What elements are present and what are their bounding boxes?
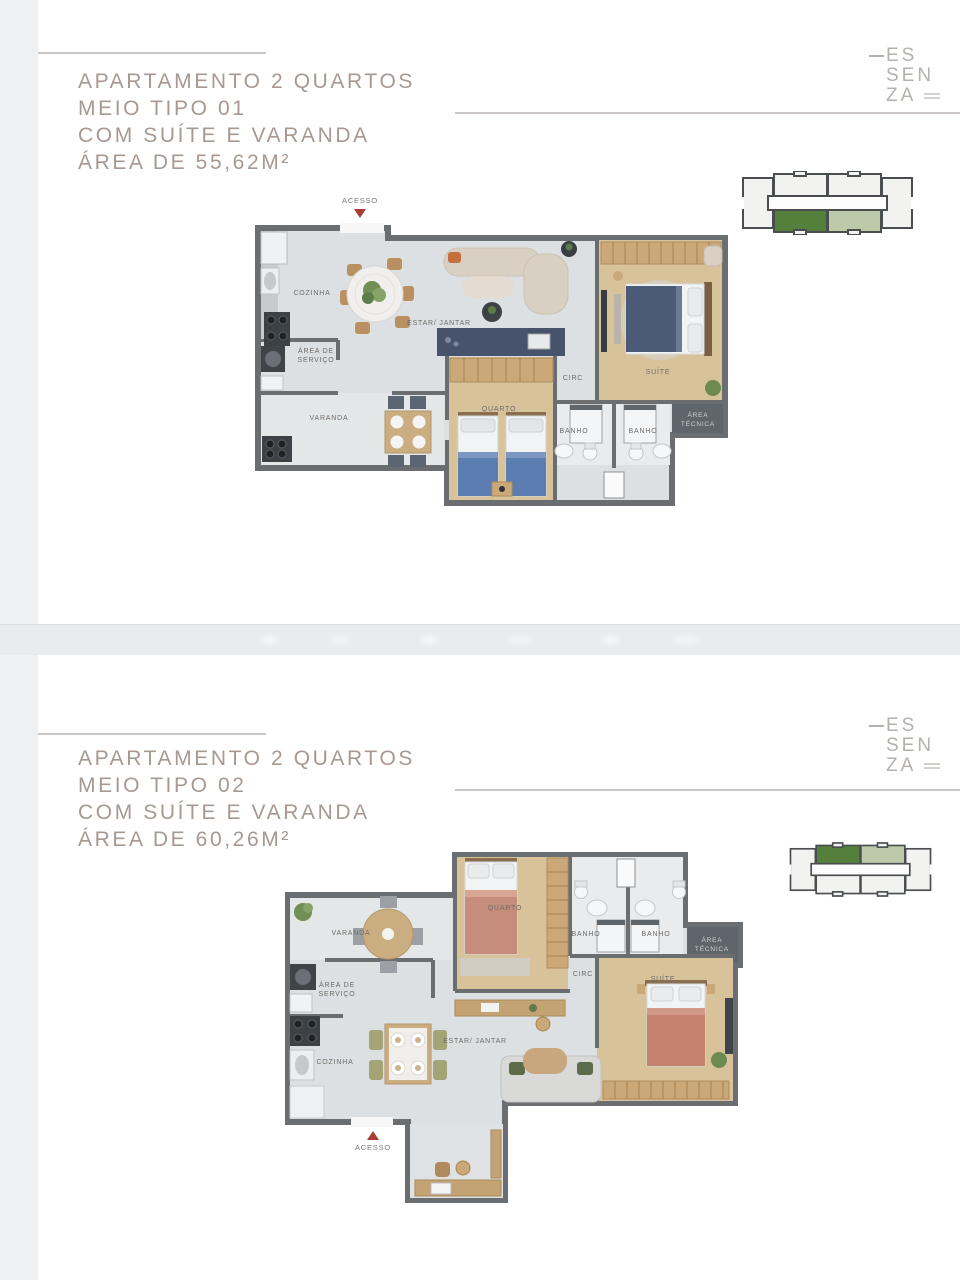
label-acesso: ACESSO: [355, 1143, 391, 1152]
divider-line: [38, 733, 266, 735]
plan2-title: APARTAMENTO 2 QUARTOS MEIO TIPO 02 COM S…: [78, 745, 415, 853]
building-key-plan-1: [740, 171, 915, 235]
logo-line: SEN: [886, 66, 956, 86]
tv: [528, 334, 550, 349]
varanda-table: [385, 411, 431, 453]
label-varanda: VARANDA: [332, 930, 371, 937]
tv-panel: [437, 328, 565, 356]
quarto-furniture: [460, 858, 568, 976]
grill: [262, 436, 292, 462]
label-varanda: VARANDA: [310, 415, 349, 422]
label-quarto: QUARTO: [488, 905, 523, 912]
label-area-servico: ÁREA DE: [298, 346, 334, 355]
title-line: ÁREA DE 55,62M²: [78, 149, 415, 176]
logo-dash: [869, 55, 884, 57]
entry-door-gap: [340, 223, 384, 233]
label-area-tecnica: ÁREA: [688, 410, 709, 419]
logo-line: ES: [886, 716, 956, 736]
label-area-tecnica: TÉCNICA: [695, 944, 729, 953]
plant: [705, 380, 721, 396]
accent-pillow: [448, 252, 461, 263]
suite-dresser: [725, 998, 733, 1054]
throw-blanket: [523, 1048, 567, 1074]
floor-plan-tipo-02: VARANDA ÁREA DE SERVIÇO COZINHA ESTAR/ J…: [285, 848, 760, 1205]
sideboard: [455, 1000, 565, 1016]
label-area-servico: ÁREA DE: [319, 980, 355, 989]
suite-closet: [603, 1081, 729, 1099]
title-line: COM SUÍTE E VARANDA: [78, 799, 415, 826]
essenza-logo: ES SEN ZA: [886, 716, 956, 776]
label-banho: BANHO: [572, 931, 601, 938]
brochure-page: APARTAMENTO 2 QUARTOS MEIO TIPO 01 COM S…: [0, 0, 960, 1280]
entry-arrow-icon: [354, 209, 366, 218]
label-area-servico: SERVIÇO: [319, 991, 356, 998]
essenza-logo: ES SEN ZA: [886, 46, 956, 106]
logo-line: ZA: [886, 756, 956, 776]
wardrobe: [547, 858, 568, 968]
label-circ: CIRC: [563, 375, 583, 382]
stove: [290, 1016, 320, 1046]
entry-door-gap: [351, 1117, 393, 1127]
label-cozinha: COZINHA: [316, 1059, 353, 1066]
label-area-servico: SERVIÇO: [298, 357, 335, 364]
logo-line: ES: [886, 46, 956, 66]
building-key-plan-2: [788, 838, 933, 901]
label-banho: BANHO: [642, 931, 671, 938]
title-line: MEIO TIPO 02: [78, 772, 415, 799]
plant: [711, 1052, 727, 1068]
label-banho: BANHO: [560, 428, 589, 435]
desk: [415, 1180, 501, 1196]
logo-line: SEN: [886, 736, 956, 756]
watermark-text-blur: [230, 631, 730, 649]
shaft: [604, 472, 624, 498]
label-quarto: QUARTO: [482, 406, 517, 413]
label-area-tecnica: TÉCNICA: [681, 419, 715, 428]
shelf: [491, 1130, 501, 1178]
label-estar-jantar: ESTAR/ JANTAR: [407, 320, 471, 327]
divider-line: [455, 112, 960, 114]
stool: [536, 1017, 550, 1031]
title-line: APARTAMENTO 2 QUARTOS: [78, 68, 415, 95]
logo-tagline-marks: [924, 93, 940, 101]
label-circ: CIRC: [573, 971, 593, 978]
laptop: [431, 1183, 451, 1194]
divider-line: [455, 789, 960, 791]
logo-line: ZA: [886, 86, 956, 106]
shaft: [617, 859, 635, 887]
logo-dash: [869, 725, 884, 727]
title-line: MEIO TIPO 01: [78, 95, 415, 122]
double-bed: [626, 282, 712, 356]
label-acesso: ACESSO: [342, 196, 378, 205]
desk-chair: [435, 1162, 450, 1177]
entry-arrow-icon: [367, 1131, 379, 1140]
label-cozinha: COZINHA: [293, 290, 330, 297]
laundry-fixtures: [290, 964, 316, 1012]
laundry-fixtures: [261, 346, 285, 390]
floor-plan-tipo-01: ACESSO COZINHA ESTAR/ JANTAR ÁREA DE SER…: [252, 190, 737, 520]
label-banho: BANHO: [629, 428, 658, 435]
divider-line: [38, 52, 266, 54]
title-line: APARTAMENTO 2 QUARTOS: [78, 745, 415, 772]
wardrobe: [450, 358, 553, 382]
label-suite: SUÍTE: [646, 367, 671, 376]
double-bed: [645, 980, 707, 1066]
logo-tagline-marks: [924, 763, 940, 771]
plan1-title: APARTAMENTO 2 QUARTOS MEIO TIPO 01 COM S…: [78, 68, 415, 176]
title-line: COM SUÍTE E VARANDA: [78, 122, 415, 149]
label-suite: SUÍTE: [651, 974, 676, 983]
label-estar-jantar: ESTAR/ JANTAR: [443, 1038, 507, 1045]
watermark-band: [0, 624, 960, 655]
suite-tv-panel: [601, 290, 607, 352]
label-area-tecnica: ÁREA: [702, 935, 723, 944]
armchair: [704, 246, 722, 266]
